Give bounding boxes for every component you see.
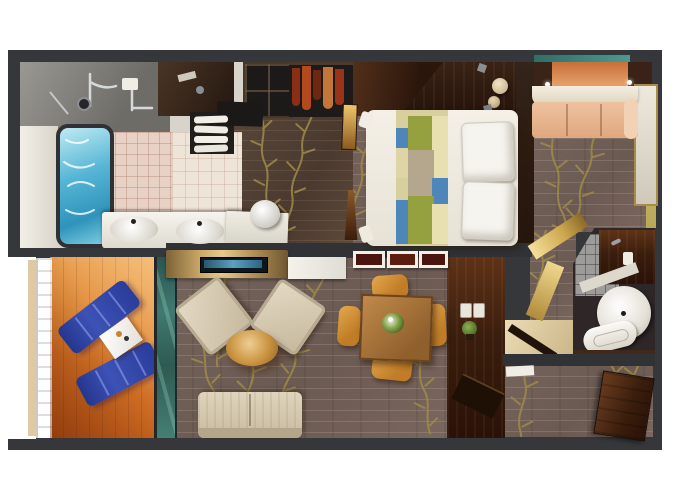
- wall-mirror-panel: [634, 84, 658, 206]
- ceiling-downlight: [627, 80, 632, 85]
- vanity-faucet-icon: [196, 86, 204, 94]
- desk-plant-pot: [466, 334, 474, 340]
- tub-water-swirls: [58, 128, 104, 236]
- floor-plan-image: [0, 0, 680, 486]
- sink-faucet-dot: [197, 221, 202, 226]
- towel-roll: [194, 144, 228, 152]
- item-on-table: [124, 336, 129, 341]
- hanging-garment: [335, 69, 344, 105]
- towel-roll: [194, 125, 228, 133]
- light-switch: [460, 303, 472, 318]
- sink-faucet-dot: [131, 219, 136, 224]
- double-sofa-bed: [532, 102, 638, 138]
- corridor-top-wall: [503, 354, 655, 366]
- balcony-outer-trim: [28, 260, 36, 436]
- second-bedroom-teal-accent: [534, 55, 630, 62]
- bed-pillow: [461, 121, 515, 183]
- dining-chair: [337, 305, 362, 346]
- sofa-back-band: [198, 428, 302, 438]
- pink-wall-tiles: [104, 132, 174, 214]
- sofa-bed-seam: [600, 104, 602, 136]
- towel-roll: [194, 115, 228, 123]
- vanity-stool: [250, 200, 280, 228]
- runner-block: [432, 204, 448, 244]
- dresser-lamp: [492, 78, 508, 94]
- soap-shelf: [122, 78, 138, 90]
- wall-picture-frame: [387, 251, 418, 268]
- basin-drain-dot: [621, 311, 626, 316]
- bathroom-white-ledge: [20, 126, 58, 248]
- bronze-mirror: [341, 104, 358, 150]
- sofa-bed-seam: [566, 104, 568, 136]
- glass-partition: [154, 257, 177, 438]
- wall-picture-frame: [419, 251, 448, 268]
- bed-pillow: [461, 181, 515, 241]
- runner-block: [408, 150, 434, 196]
- sofa-bed-bolster: [624, 99, 638, 139]
- shower-fixtures-icon: [20, 62, 170, 132]
- runner-block: [396, 200, 408, 244]
- hanging-garment: [313, 70, 321, 100]
- second-bathroom: [573, 228, 655, 366]
- runner-block: [432, 116, 448, 178]
- runner-block: [396, 128, 408, 148]
- ceiling-panel: [552, 62, 628, 88]
- door-mat: [506, 365, 534, 376]
- hanging-garment: [323, 67, 333, 109]
- hanging-garment: [302, 66, 311, 110]
- storage-bench: [217, 101, 264, 127]
- centerpiece-highlight: [388, 317, 393, 322]
- runner-block: [408, 116, 432, 150]
- sofa-cushion-gap: [249, 394, 251, 426]
- tv-screen-glow: [204, 260, 262, 268]
- runner-block: [408, 196, 434, 244]
- wet-bar-counter: [288, 257, 346, 279]
- entrance-door: [593, 370, 654, 441]
- floral-centerpiece: [382, 313, 404, 333]
- hanging-garment: [292, 68, 300, 106]
- second-bedroom-carpet: [530, 136, 648, 232]
- round-ottoman: [226, 330, 278, 366]
- runner-block: [432, 178, 448, 204]
- drink-on-table: [116, 331, 122, 337]
- towel-roll: [194, 136, 228, 143]
- wall-picture-frame: [353, 251, 385, 268]
- light-switch: [473, 303, 485, 318]
- runner-block: [396, 148, 408, 178]
